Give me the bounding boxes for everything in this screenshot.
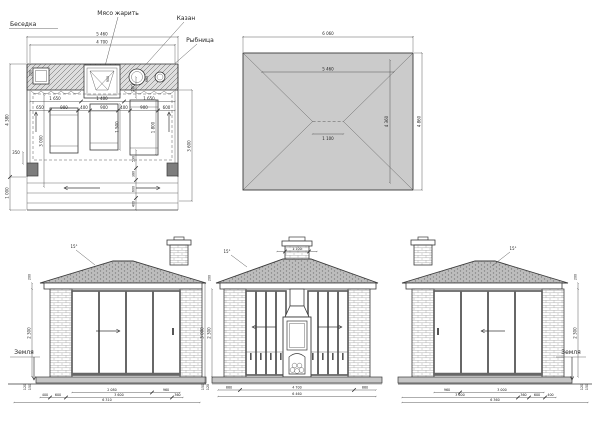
base-slab: [212, 377, 382, 383]
door-handle: [437, 328, 439, 335]
brick-pillar-left: [50, 289, 72, 377]
bbq-fireplace: [283, 289, 311, 377]
fish-pan-outline: [155, 72, 165, 82]
dim-label: 6 460: [292, 392, 301, 396]
dim-label: 360: [520, 393, 526, 397]
ground-label: Земля: [14, 349, 34, 356]
dim-label: 120: [580, 384, 584, 390]
roof-slope-label: 15°: [223, 249, 230, 254]
hood-neck: [290, 289, 304, 306]
counter-scallop-left: [31, 91, 81, 94]
dim-label: 2 300: [573, 327, 578, 339]
elevation-center: 15° 1 100 3 000 2 300 200 150 120 880 4 …: [200, 237, 383, 397]
dim-label: 6 060: [322, 31, 334, 36]
dim-label: 1 500: [115, 121, 120, 133]
roof: [216, 259, 378, 283]
dim-label: 3 600: [187, 140, 192, 152]
sliding-glass-doors: [72, 291, 180, 375]
sliding-glass-doors-left: [246, 291, 286, 375]
dim-label: 4 700: [96, 40, 108, 45]
dim-label: 150: [28, 384, 32, 390]
brick-pillar-right: [542, 289, 564, 377]
terrace-steps: [27, 177, 178, 210]
dim-label: 5 460: [322, 67, 334, 72]
dim-label: 3 000: [200, 327, 205, 339]
callout-fish: Рыбница: [186, 37, 214, 44]
dim-label: 900: [100, 105, 108, 110]
callout-grill: Мясо жарить: [97, 10, 139, 17]
dim-label: 960: [444, 388, 450, 392]
dim-label: 3 600: [455, 393, 464, 397]
dim-label: 660: [145, 76, 149, 82]
fascia: [220, 283, 376, 289]
dim-label: 5 460: [96, 32, 108, 37]
wood-storage-arch: [289, 354, 305, 375]
dim-label: 400: [132, 201, 136, 207]
dim-label: 900: [140, 105, 148, 110]
plan-title: Беседка: [10, 21, 37, 28]
dim-label: 400: [42, 393, 48, 397]
dim-label: 600: [163, 105, 171, 110]
bench-left: [50, 108, 78, 153]
roof-plan: 6 060 5 460 1 100 4 360 4 860: [243, 31, 422, 190]
dim-label: 1 400: [96, 96, 108, 101]
roof-slope-label: 15°: [70, 244, 77, 249]
dim-label: 880: [226, 386, 232, 390]
chimney: [167, 237, 191, 265]
callout-kazan: Казан: [177, 15, 196, 22]
brick-pillar-right: [348, 289, 370, 377]
dim-label: 700: [131, 84, 136, 92]
sliding-glass-doors: [434, 291, 542, 375]
dim-label: 360: [174, 393, 180, 397]
drawing-canvas: Беседка Мясо жарить Казан Рыбница: [0, 0, 600, 424]
dim-label: 2 080: [107, 388, 116, 392]
dim-label: 2 300: [27, 327, 32, 339]
dim-label: 3 000: [497, 388, 506, 392]
door-handle: [172, 328, 174, 335]
dim-label: 6 310: [102, 398, 111, 402]
dim-label: 960: [163, 388, 169, 392]
dim-label: 120: [206, 384, 210, 390]
dim-label: 400: [547, 393, 553, 397]
dim-label: 200: [574, 274, 578, 280]
dim-label: 200: [28, 274, 32, 280]
base-slab: [398, 377, 572, 383]
architectural-drawing-sheet: Беседка Мясо жарить Казан Рыбница: [0, 0, 600, 424]
plan-view: Беседка Мясо жарить Казан Рыбница: [5, 10, 215, 210]
brick-pillar-left: [224, 289, 246, 377]
dim-label: 1 100: [292, 247, 301, 251]
dim-label: 4 860: [417, 115, 422, 127]
dim-label: 200: [208, 275, 212, 281]
dim-label: 150: [201, 384, 205, 390]
dim-label: 6 360: [490, 398, 499, 402]
sliding-glass-doors-right: [308, 291, 348, 375]
dim-label: 1 800: [151, 121, 156, 133]
dim-label: 2 300: [207, 327, 212, 339]
oven-opening: [287, 321, 307, 350]
fascia: [406, 283, 562, 289]
dim-label: 880: [362, 386, 368, 390]
grill-box: [84, 65, 120, 98]
dim-label: 600: [132, 186, 136, 192]
dim-label: 600: [55, 393, 61, 397]
elevation-left: Земля 15° 2 300 200 120 150 2 080 960 40…: [8, 237, 206, 403]
dim-label: 600: [534, 393, 540, 397]
dim-label: 120: [23, 384, 27, 390]
dim-label: 3 000: [39, 135, 44, 147]
dim-label: 900: [106, 76, 110, 82]
dim-label: 1 100: [322, 136, 334, 141]
elevation-right: Земля 15° 2 300 200 120 150 960 3 000 3 …: [398, 237, 592, 403]
dim-label: 400: [80, 105, 88, 110]
dim-label: 3 600: [114, 393, 123, 397]
brick-pillar-left: [412, 289, 434, 377]
dim-label: 380: [132, 171, 136, 177]
dim-label: 350: [12, 150, 20, 155]
dim-label: 200: [29, 70, 33, 76]
dim-label: 4 360: [384, 115, 389, 127]
dim-label: 590: [132, 156, 136, 162]
fascia: [44, 283, 202, 289]
column-left: [27, 163, 38, 176]
dim-label: 650: [36, 105, 44, 110]
dim-label: 1 000: [5, 187, 10, 199]
dim-label: 1 650: [49, 96, 61, 101]
dim-label: 900: [60, 105, 68, 110]
chimney: [411, 237, 435, 265]
roof-slope-label: 15°: [509, 246, 516, 251]
dim-label: 150: [585, 384, 589, 390]
hood-flare: [285, 306, 309, 317]
dim-label: 4 380: [5, 114, 10, 126]
base-slab: [36, 377, 206, 383]
dim-label: 4 700: [292, 386, 301, 390]
dim-label: 1 650: [143, 96, 155, 101]
column-right: [167, 163, 178, 176]
dim-label: 400: [120, 105, 128, 110]
